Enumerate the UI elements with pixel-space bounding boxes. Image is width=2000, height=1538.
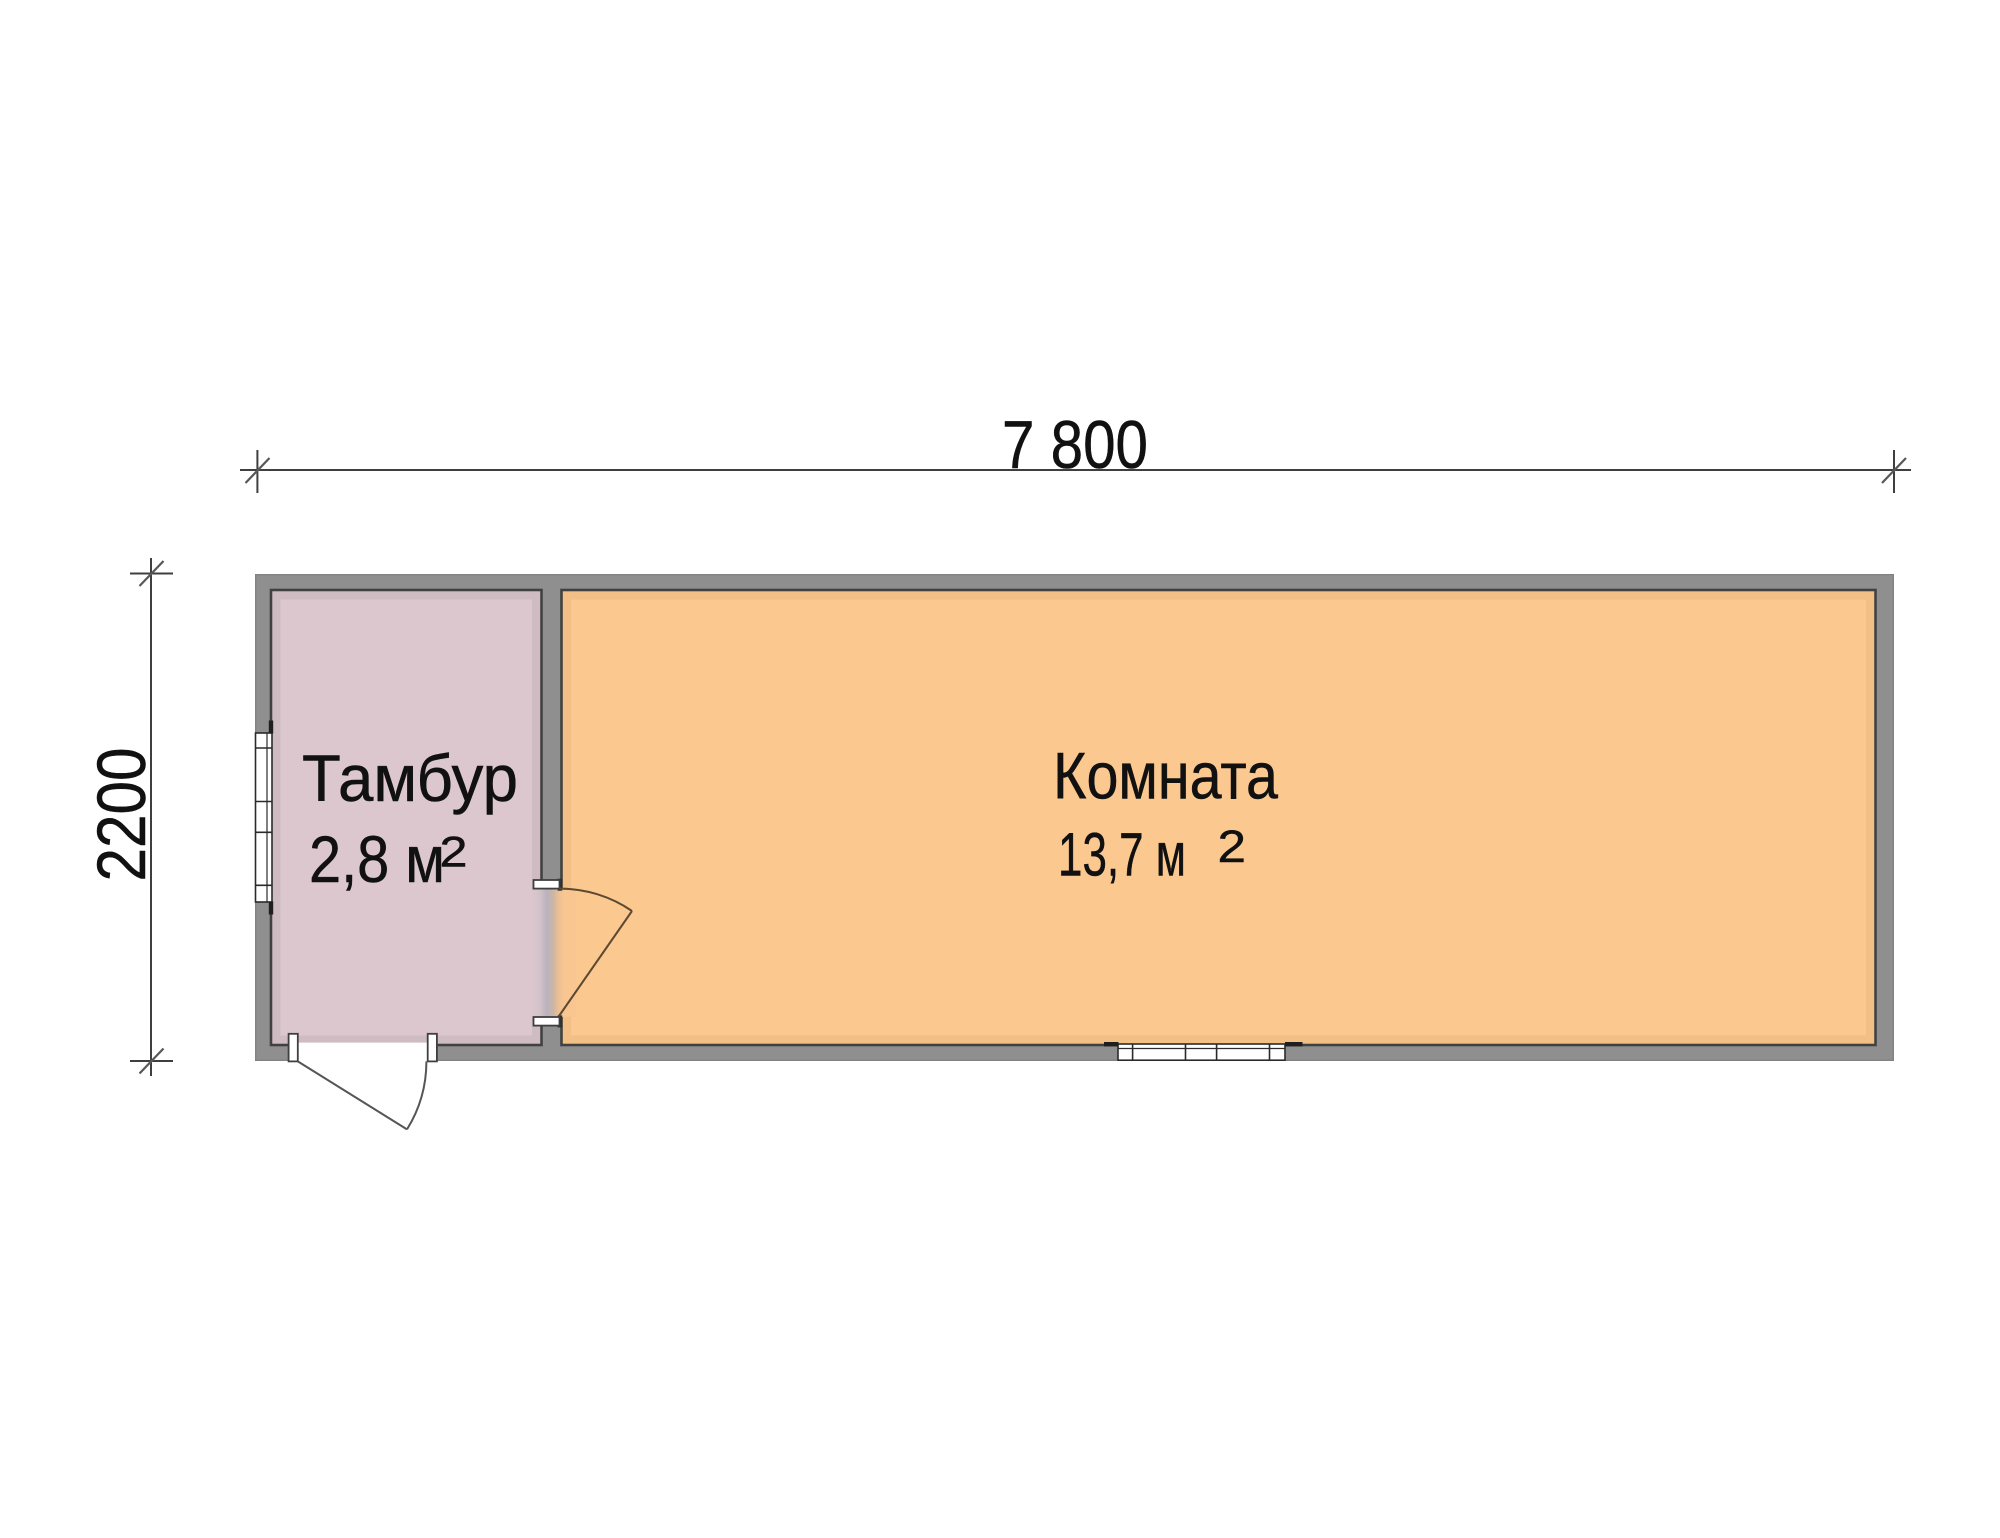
svg-text:2: 2	[1218, 821, 1247, 872]
svg-text:7 800: 7 800	[1002, 407, 1148, 483]
svg-text:2: 2	[440, 829, 468, 877]
svg-text:Тамбур: Тамбур	[302, 741, 518, 815]
svg-text:Комната: Комната	[1053, 739, 1278, 813]
svg-text:2200: 2200	[83, 748, 160, 882]
svg-text:2,8 м: 2,8 м	[309, 822, 445, 896]
svg-text:13,7 м: 13,7 м	[1058, 821, 1186, 889]
